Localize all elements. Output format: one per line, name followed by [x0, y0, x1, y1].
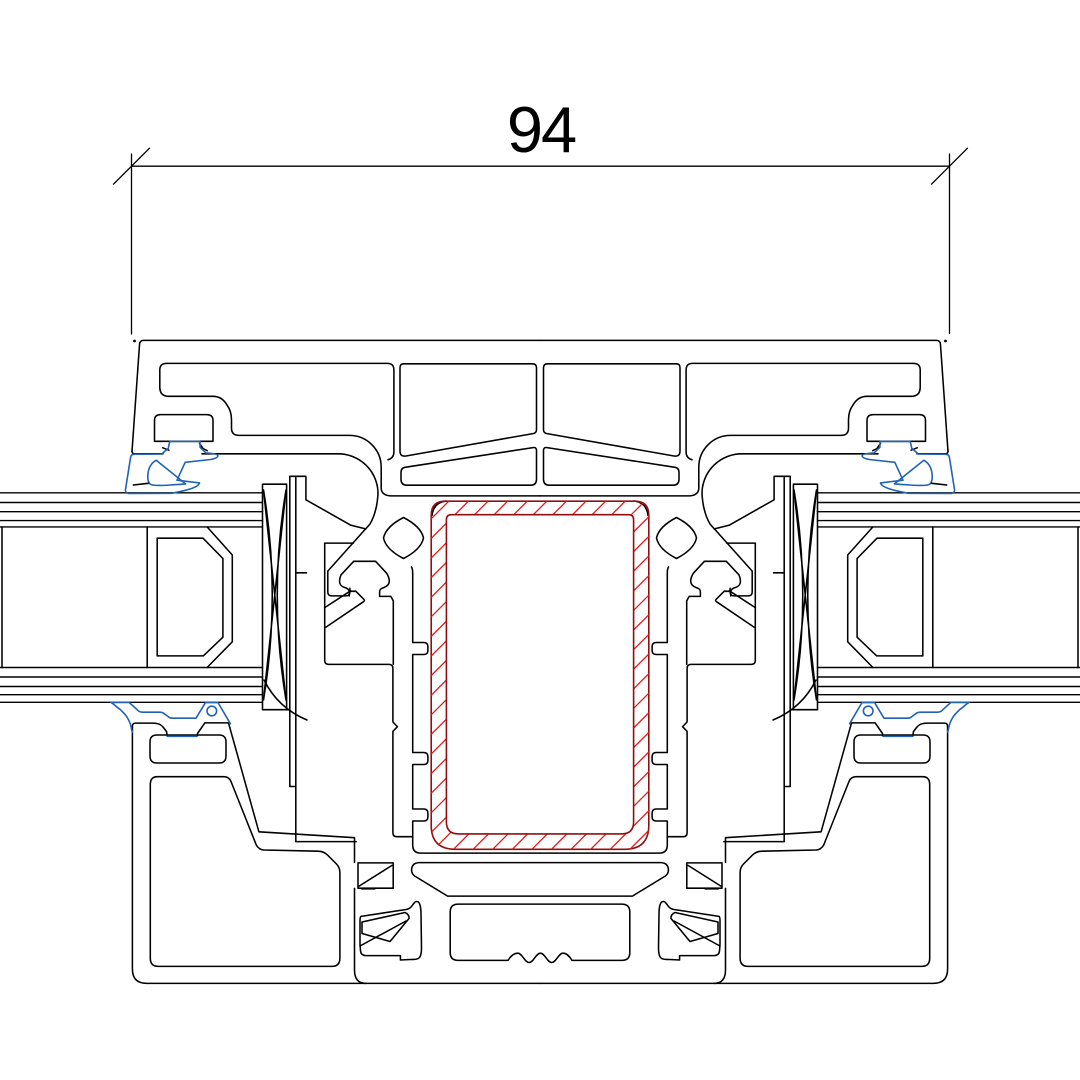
- svg-text:94: 94: [507, 93, 576, 166]
